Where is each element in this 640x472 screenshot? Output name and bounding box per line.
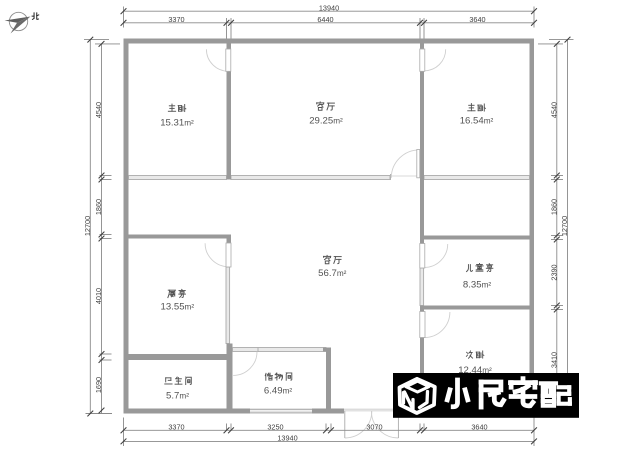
svg-text:3640: 3640: [471, 423, 487, 432]
svg-text:3640: 3640: [469, 15, 485, 24]
svg-text:15.31m²: 15.31m²: [160, 118, 194, 129]
svg-text:3070: 3070: [366, 423, 382, 432]
svg-text:1860: 1860: [549, 199, 558, 215]
svg-text:1860: 1860: [94, 199, 103, 215]
svg-text:13.55m²: 13.55m²: [161, 301, 195, 312]
svg-text:6.49m²: 6.49m²: [264, 385, 293, 396]
svg-text:56.7m²: 56.7m²: [318, 268, 347, 279]
svg-text:2390: 2390: [549, 264, 558, 280]
svg-text:13940: 13940: [277, 434, 297, 443]
svg-text:4010: 4010: [94, 288, 103, 304]
svg-text:4540: 4540: [94, 102, 103, 118]
svg-text:5.7m²: 5.7m²: [166, 391, 189, 402]
svg-text:4540: 4540: [549, 102, 558, 118]
svg-text:29.25m²: 29.25m²: [309, 116, 343, 127]
svg-text:16.54m²: 16.54m²: [460, 116, 494, 127]
svg-text:12700: 12700: [83, 216, 92, 236]
svg-text:6440: 6440: [317, 15, 333, 24]
svg-text:1690: 1690: [94, 377, 103, 393]
svg-text:13940: 13940: [319, 4, 339, 13]
svg-text:3250: 3250: [267, 423, 283, 432]
svg-text:3370: 3370: [168, 15, 184, 24]
svg-text:3370: 3370: [168, 423, 184, 432]
svg-text:8.35m²: 8.35m²: [463, 280, 492, 291]
svg-text:12700: 12700: [560, 216, 569, 236]
svg-text:3410: 3410: [549, 352, 558, 368]
